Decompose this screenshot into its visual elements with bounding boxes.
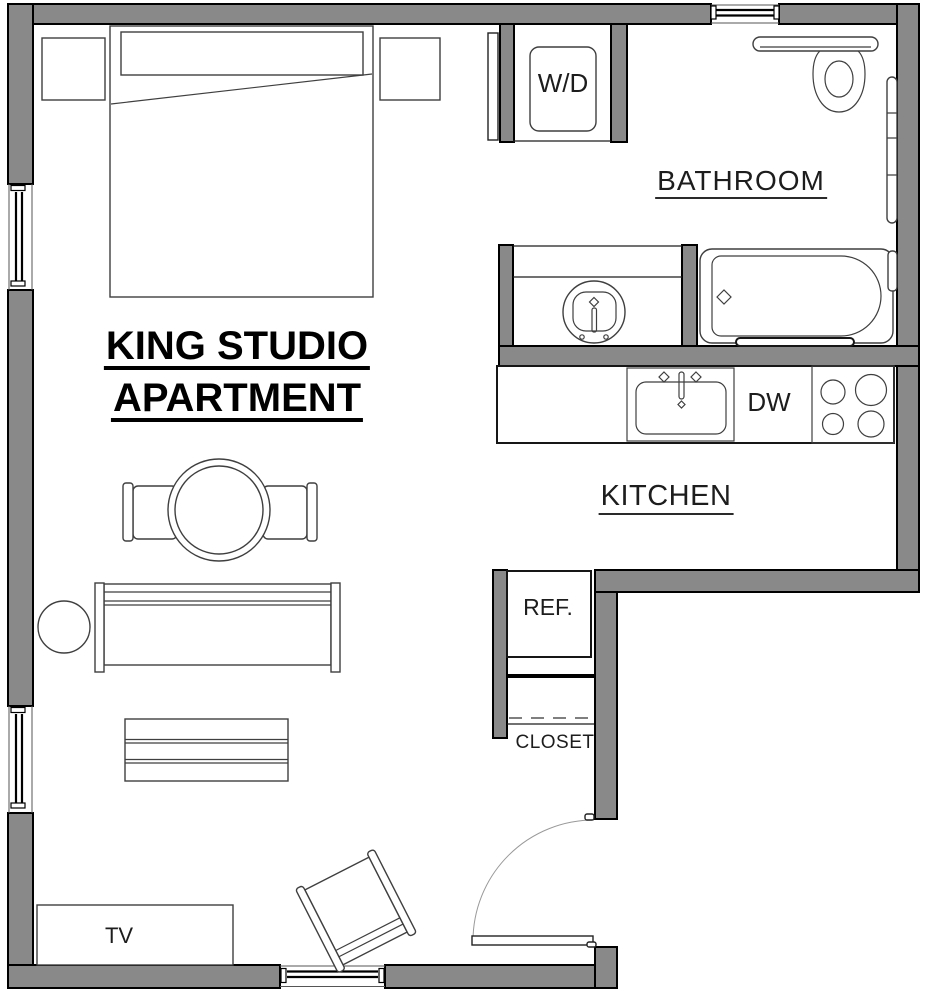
wall-left-lower <box>8 813 33 988</box>
accent-chair <box>295 849 416 973</box>
refrigerator-label: REF. <box>523 596 573 619</box>
coffee-table <box>125 719 288 781</box>
kitchen-label: KITCHEN <box>599 482 734 515</box>
bathroom-label: BATHROOM <box>655 167 827 199</box>
coffee-table-top <box>125 719 288 781</box>
wall-closet-north <box>507 674 595 678</box>
bathroom-vanity <box>513 246 682 343</box>
wall-closet-west <box>493 570 507 738</box>
closet <box>507 718 594 724</box>
nightstand-right <box>380 38 440 100</box>
sofa-arm-left <box>95 583 104 672</box>
tv-label: TV <box>105 925 133 947</box>
wall-entry-east <box>595 592 617 819</box>
toilet-bowl <box>813 45 865 112</box>
entry-door-swing-arc <box>473 820 594 941</box>
entry-door-stop <box>587 942 596 947</box>
wall-bottom-left <box>8 965 280 988</box>
bed <box>110 26 373 297</box>
closet-label: CLOSET <box>515 733 594 752</box>
wall-wd-right <box>611 24 627 142</box>
towel-bar <box>887 77 897 223</box>
bed-outline <box>110 26 373 297</box>
bathtub-front-step <box>736 338 854 346</box>
wall-left-upper <box>8 4 33 184</box>
tv-console-outline <box>37 905 233 965</box>
floor-plan-drawing <box>0 0 928 1000</box>
wall-kitchen-south <box>595 570 919 592</box>
bathtub-rim-end <box>888 251 897 291</box>
sofa-body <box>104 584 331 665</box>
dining-chair-right-back <box>307 483 317 541</box>
tv-console <box>37 905 233 965</box>
dining-table-outer <box>168 459 270 561</box>
side-table <box>38 601 90 653</box>
wall-top-left <box>8 4 711 24</box>
entry-door <box>472 814 596 947</box>
washer-dryer-label: W/D <box>538 70 589 96</box>
window-bottom <box>280 966 385 987</box>
wall-bottom-corner <box>595 947 617 988</box>
dining-set <box>123 459 317 561</box>
window-top <box>711 5 779 23</box>
dishwasher-label: DW <box>747 389 790 415</box>
floor-plan: KING STUDIO APARTMENT BATHROOM KITCHEN W… <box>0 0 928 1000</box>
toilet <box>753 37 878 112</box>
wall-bottom-mid <box>385 965 595 988</box>
window-left-lower <box>9 706 32 813</box>
toilet-bowl-inner <box>825 61 853 97</box>
bathroom-door-leaf <box>488 33 498 140</box>
wall-wd-left <box>500 24 514 142</box>
entry-door-hinge <box>585 814 594 820</box>
bathtub <box>700 249 897 346</box>
entry-door-leaf <box>472 936 593 945</box>
wall-left-middle <box>8 290 33 706</box>
nightstand-left <box>42 38 105 100</box>
dining-chair-left-back <box>123 483 133 541</box>
wall-right <box>897 4 919 592</box>
wall-bathroom-south <box>499 346 919 366</box>
kitchen-counter <box>497 366 894 443</box>
plan-title-line2: APARTMENT <box>111 378 363 422</box>
towel-bar-rail <box>887 77 897 223</box>
sofa <box>95 583 340 672</box>
window-left-upper <box>9 184 32 290</box>
plan-title-line1: KING STUDIO <box>104 326 370 370</box>
toilet-tank-shelf <box>753 37 878 51</box>
sofa-arm-right <box>331 583 340 672</box>
